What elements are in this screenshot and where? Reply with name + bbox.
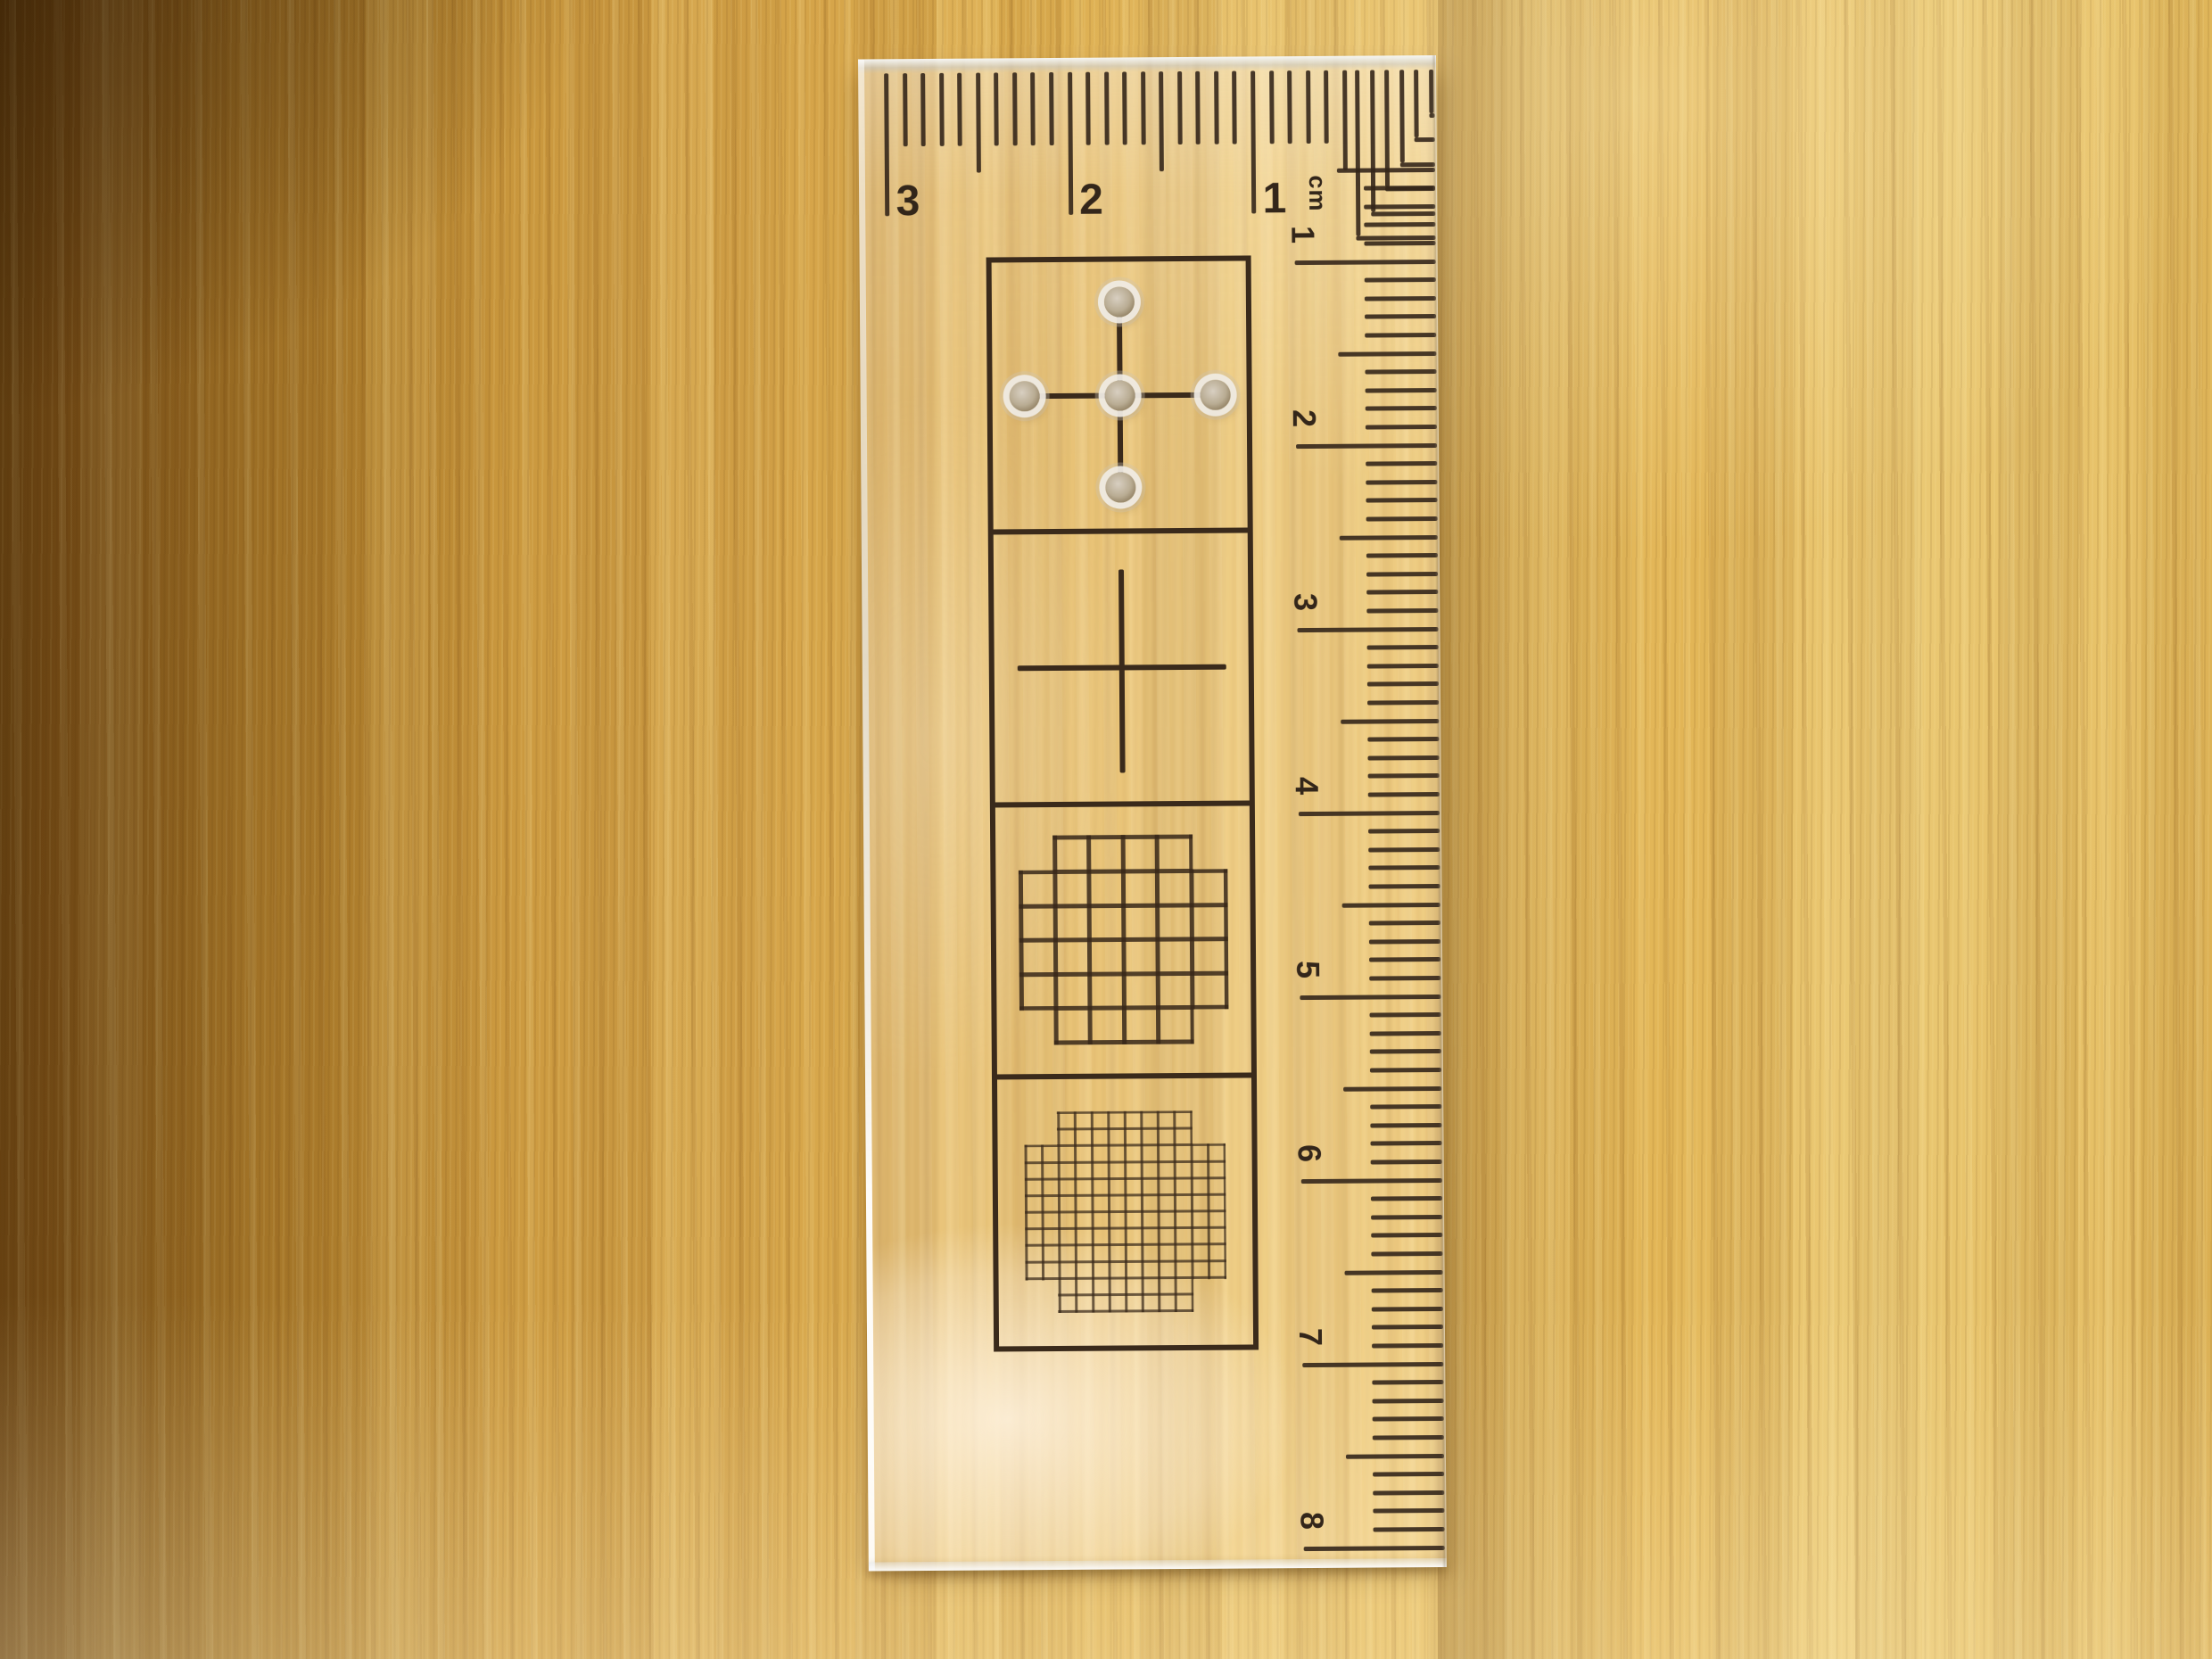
corner-bracket-vertical — [1384, 70, 1390, 186]
crosshair-vertical — [1118, 569, 1126, 772]
photo-scene: 321 12345678 cm — [0, 0, 2212, 1659]
ruler: 321 12345678 cm — [858, 55, 1447, 1571]
corner-bracket-vertical — [1370, 70, 1375, 211]
drill-hole-bottom — [1105, 472, 1135, 502]
corner-bracket-horizontal — [1399, 162, 1435, 167]
drill-hole-right — [1200, 379, 1230, 409]
drill-hole-left — [1009, 381, 1039, 411]
calibration-panels — [986, 255, 1259, 1351]
corner-bracket-horizontal — [1371, 211, 1436, 217]
drill-hole-top — [1103, 286, 1134, 317]
fine-grid-circle — [1024, 1110, 1227, 1314]
corner-bracket-horizontal — [1356, 235, 1435, 241]
panel-fine-grid — [997, 1072, 1253, 1346]
unit-label-cm: cm — [1291, 179, 1344, 208]
corner-bracket-horizontal — [1385, 186, 1435, 191]
panel-crosshair — [994, 528, 1250, 802]
coarse-grid-circle — [1018, 834, 1229, 1045]
corner-bracket-vertical — [1414, 70, 1419, 137]
corner-bracket-vertical — [1399, 70, 1405, 162]
drill-hole-center — [1104, 380, 1135, 410]
panel-coarse-grid — [995, 800, 1251, 1074]
corner-bracket-vertical — [1355, 70, 1360, 236]
panel-cross-with-holes — [992, 260, 1248, 529]
